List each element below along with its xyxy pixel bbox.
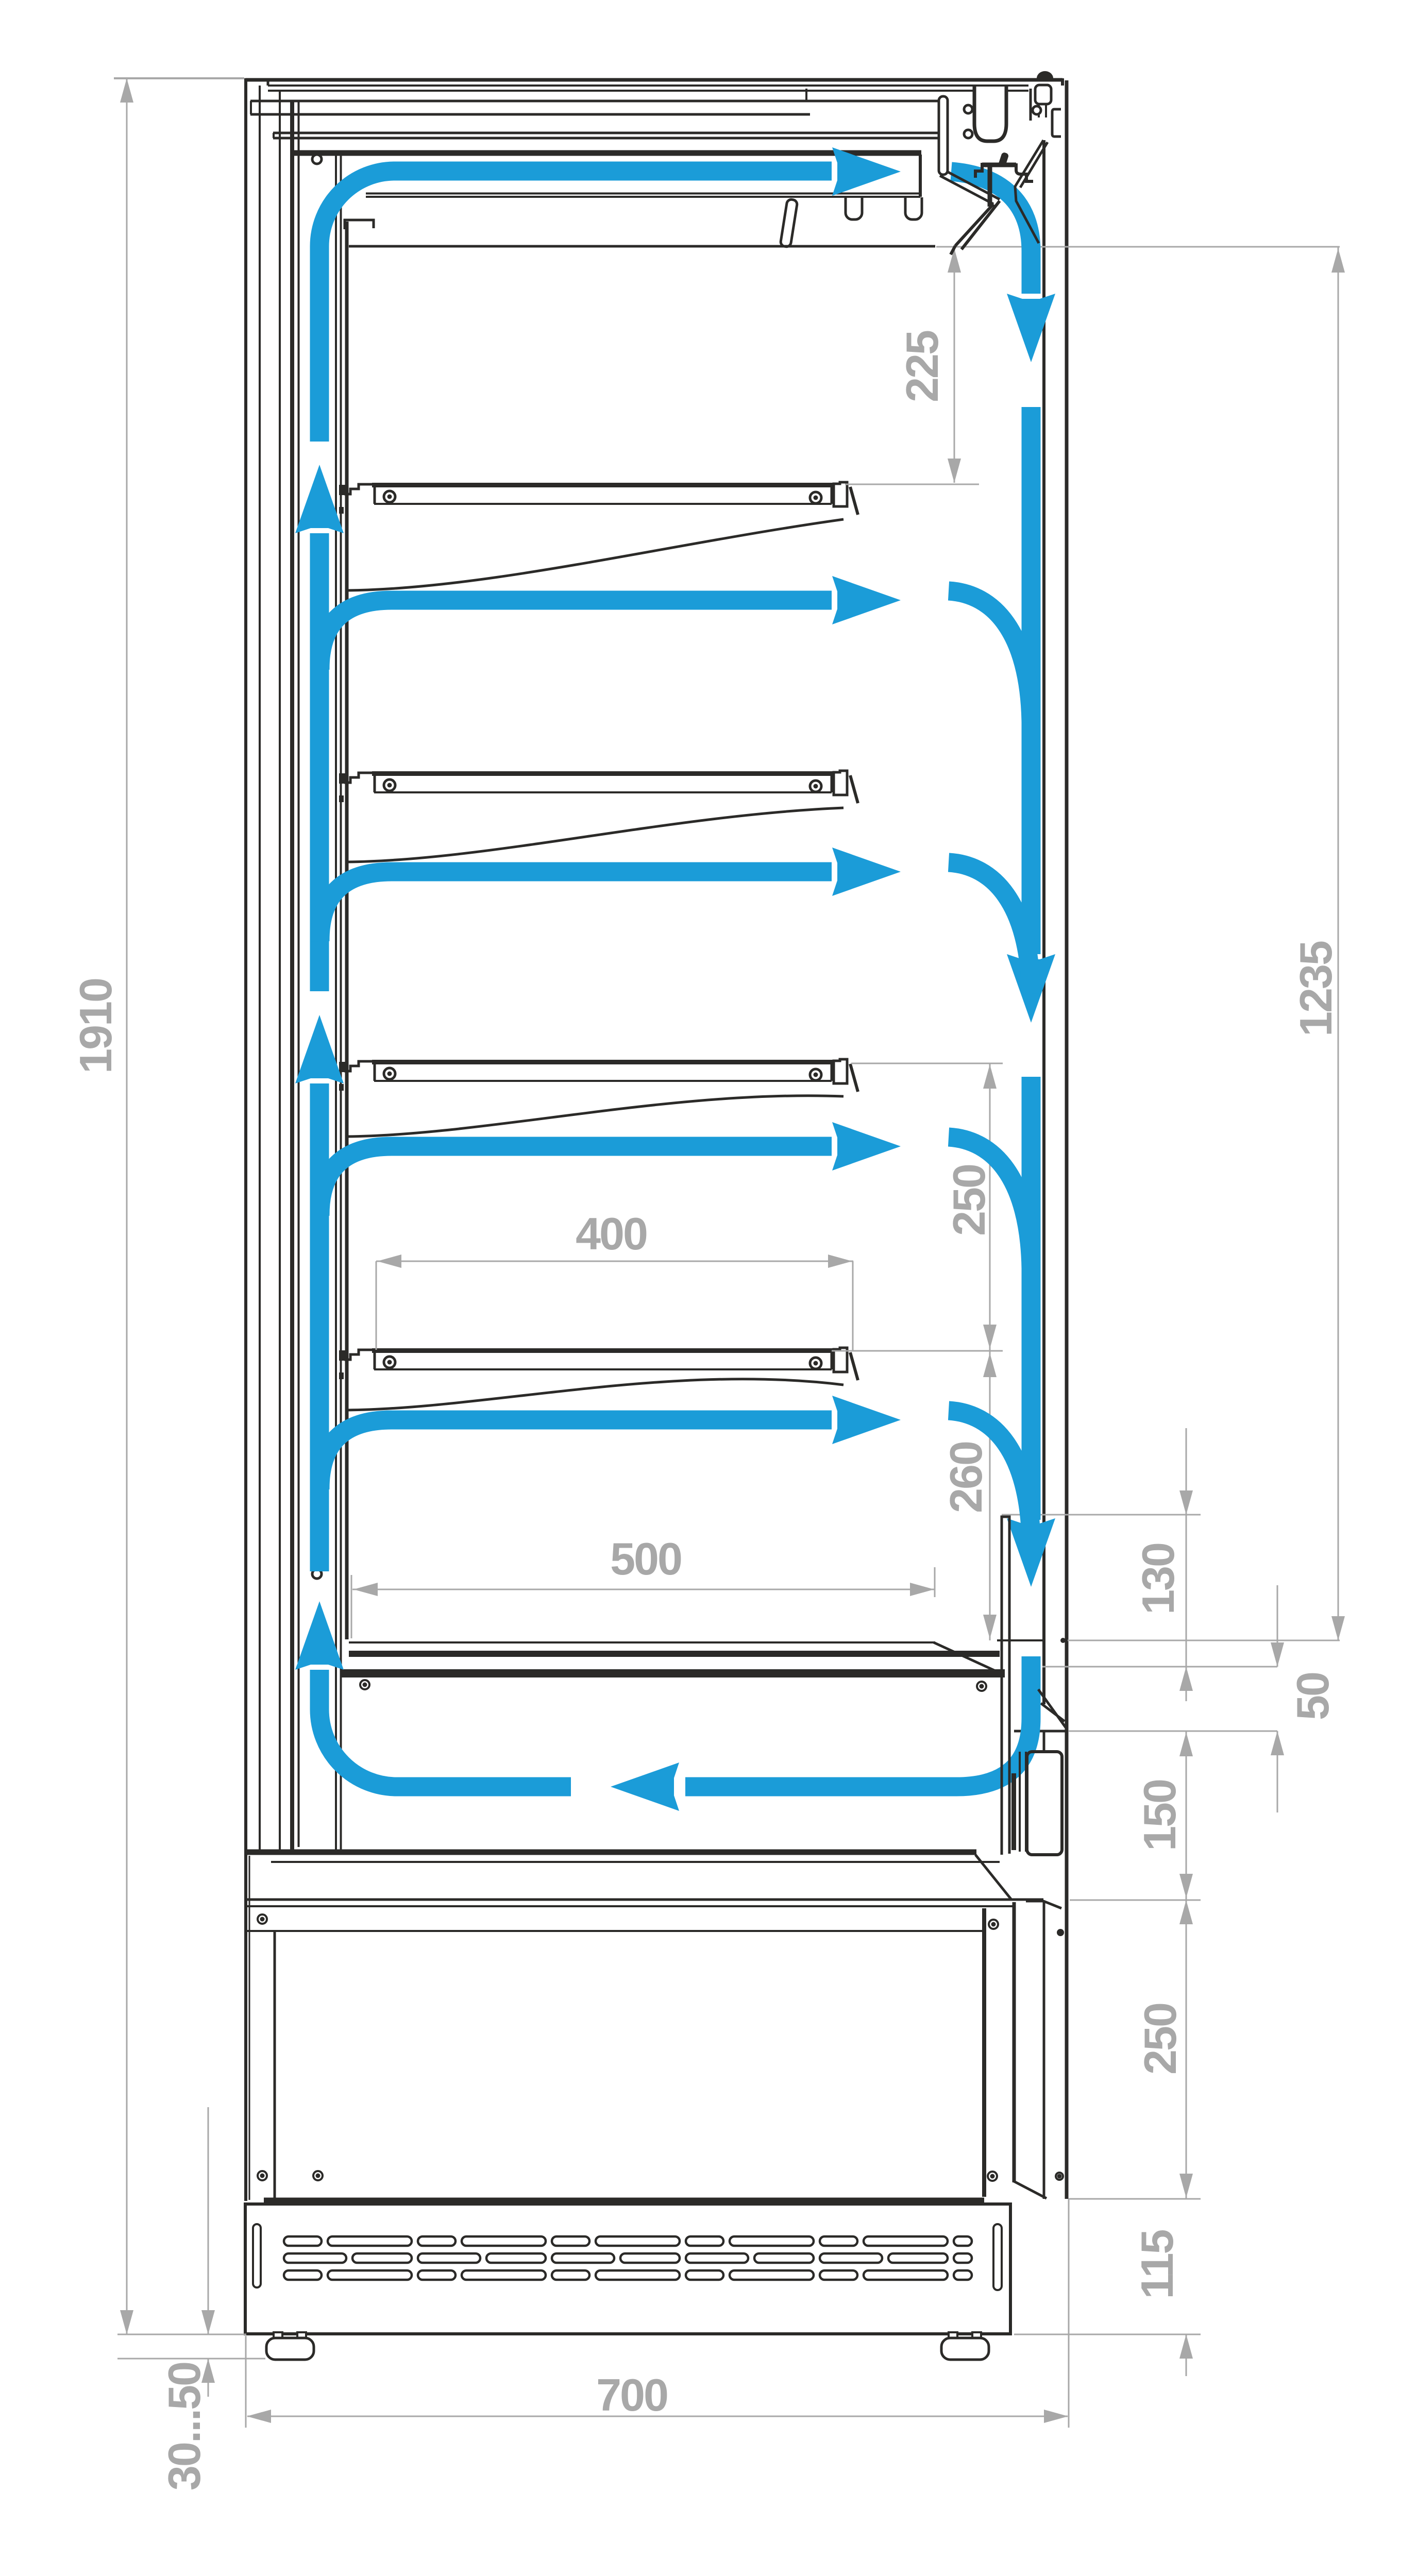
svg-text:225: 225 bbox=[897, 331, 948, 402]
svg-text:115: 115 bbox=[1132, 2230, 1183, 2299]
svg-text:130: 130 bbox=[1133, 1544, 1184, 1615]
svg-text:30...50: 30...50 bbox=[159, 2363, 210, 2490]
svg-text:150: 150 bbox=[1134, 1780, 1185, 1851]
svg-text:400: 400 bbox=[576, 1208, 647, 1259]
svg-text:50: 50 bbox=[1287, 1673, 1338, 1720]
svg-text:1235: 1235 bbox=[1290, 941, 1341, 1037]
svg-text:1910: 1910 bbox=[70, 979, 121, 1074]
svg-text:260: 260 bbox=[940, 1442, 991, 1513]
svg-text:700: 700 bbox=[596, 2369, 667, 2420]
svg-text:250: 250 bbox=[943, 1165, 994, 1236]
svg-text:250: 250 bbox=[1135, 2004, 1186, 2075]
svg-text:500: 500 bbox=[610, 1533, 681, 1584]
